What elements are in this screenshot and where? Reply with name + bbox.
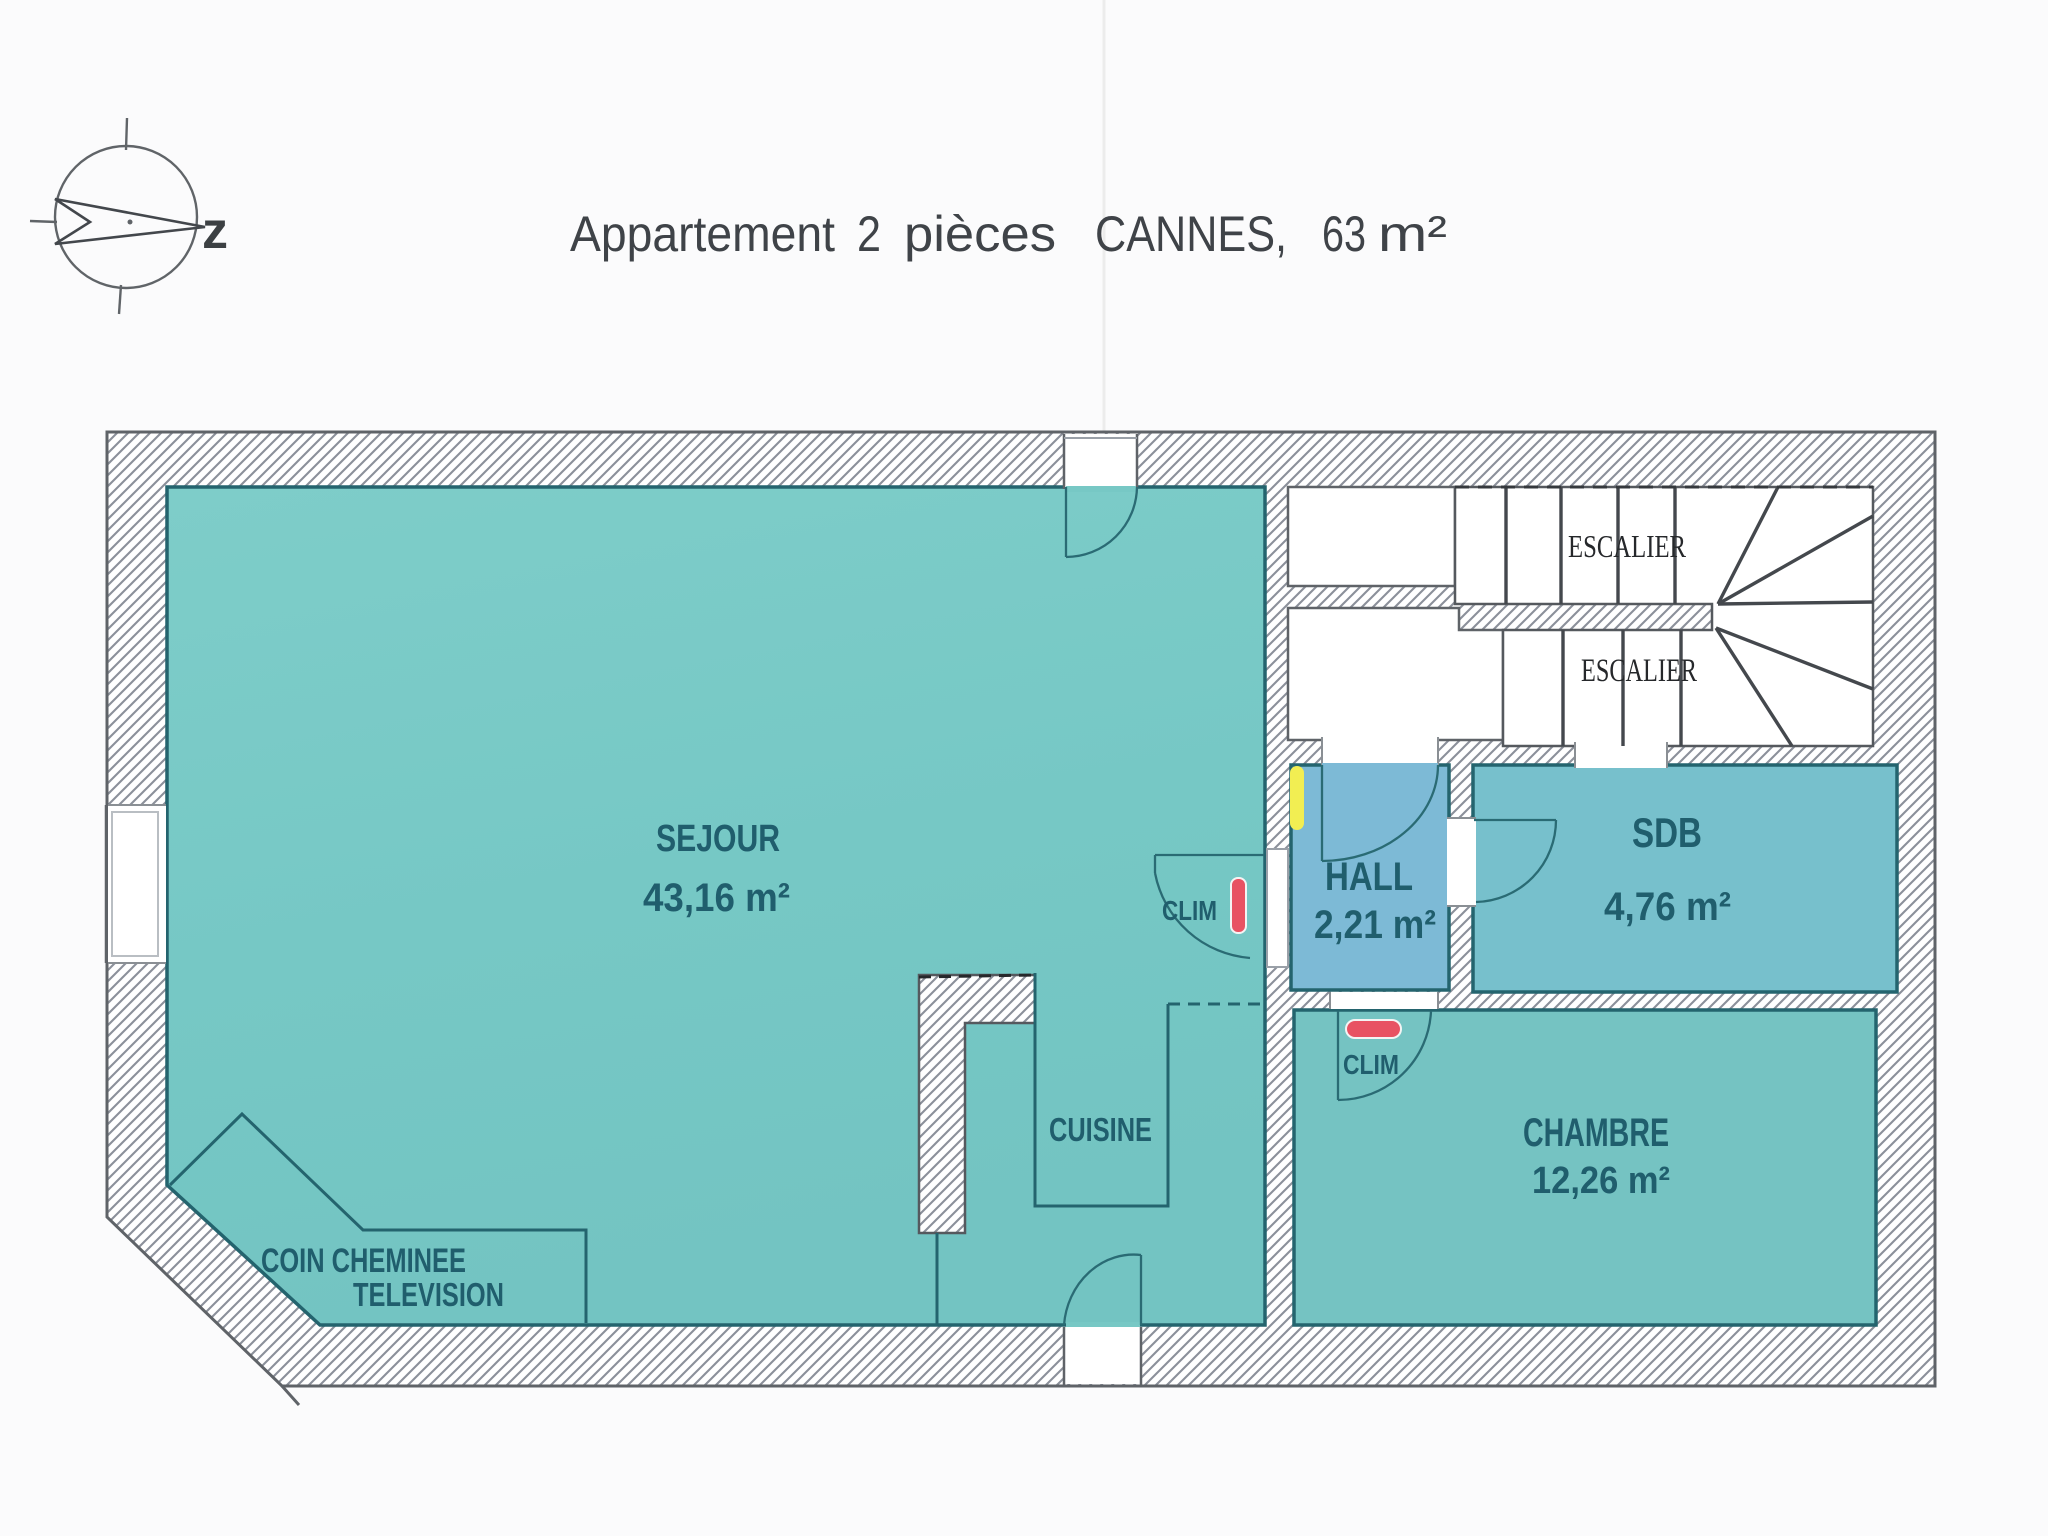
- svg-text:ESCALIER: ESCALIER: [1581, 653, 1697, 689]
- svg-text:4,76 m²: 4,76 m²: [1604, 885, 1731, 929]
- svg-text:63: 63: [1322, 206, 1366, 262]
- svg-text:2,21 m²: 2,21 m²: [1314, 903, 1436, 947]
- svg-text:SDB: SDB: [1632, 809, 1702, 856]
- svg-text:Appartement: Appartement: [570, 206, 835, 262]
- svg-text:2: 2: [857, 206, 881, 262]
- svg-text:pièces: pièces: [904, 206, 1056, 262]
- svg-text:SEJOUR: SEJOUR: [656, 818, 780, 860]
- svg-text:m²: m²: [1378, 206, 1447, 262]
- svg-text:CLIM: CLIM: [1343, 1049, 1399, 1080]
- svg-text:HALL: HALL: [1325, 855, 1413, 899]
- svg-text:CANNES,: CANNES,: [1095, 206, 1287, 262]
- svg-text:z: z: [202, 202, 228, 260]
- svg-text:COIN CHEMINEE: COIN CHEMINEE: [261, 1242, 466, 1280]
- svg-text:CHAMBRE: CHAMBRE: [1523, 1111, 1669, 1155]
- svg-text:ESCALIER: ESCALIER: [1568, 528, 1687, 564]
- svg-text:CLIM: CLIM: [1162, 895, 1217, 926]
- svg-text:12,26 m²: 12,26 m²: [1532, 1160, 1670, 1202]
- svg-text:43,16 m²: 43,16 m²: [643, 876, 790, 920]
- svg-text:CUISINE: CUISINE: [1049, 1111, 1152, 1148]
- svg-text:TELEVISION: TELEVISION: [353, 1276, 504, 1313]
